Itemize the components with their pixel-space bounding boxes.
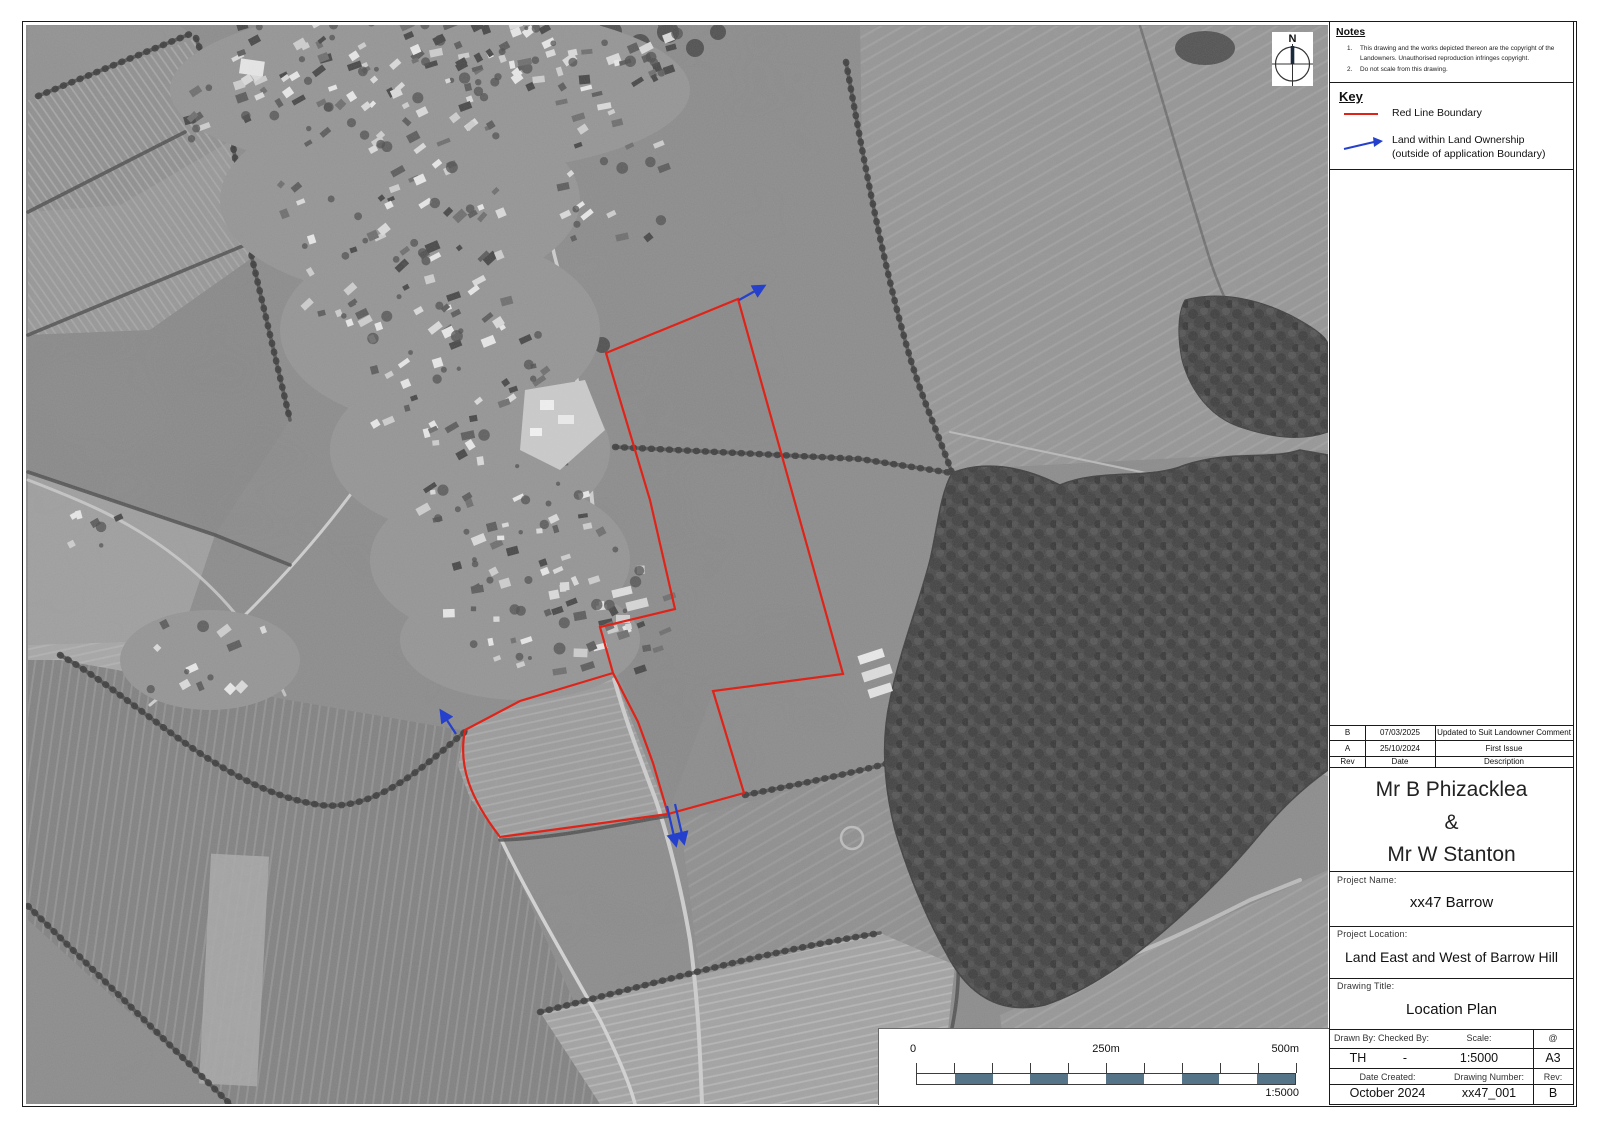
revision-header: Rev xyxy=(1330,757,1365,766)
drawing-number-value: xx47_001 xyxy=(1445,1086,1533,1100)
title-block: Notes 1. This drawing and the works depi… xyxy=(1329,21,1574,1105)
scale-value: 1:5000 xyxy=(1425,1051,1533,1065)
revision-cell: A xyxy=(1330,744,1365,753)
scale-bar: 0 250m 500m 1:5000 xyxy=(878,1028,1329,1105)
scale-mid-label: 250m xyxy=(879,1043,1333,1055)
rev-label: Rev: xyxy=(1533,1072,1573,1082)
rev-value: B xyxy=(1533,1086,1573,1100)
red-line-legend-swatch xyxy=(1344,113,1378,115)
north-label: N xyxy=(1272,33,1313,45)
scale-end-label: 500m xyxy=(1271,1043,1299,1055)
revision-cell: B xyxy=(1330,728,1365,737)
red-line-legend-label: Red Line Boundary xyxy=(1392,107,1482,119)
north-indicator: N xyxy=(1272,32,1313,86)
client-names: Mr B Phizacklea & Mr W Stanton xyxy=(1330,774,1573,872)
notes-heading: Notes xyxy=(1336,26,1365,38)
scale-bar-segments xyxy=(916,1073,1296,1085)
revision-header: Description xyxy=(1435,757,1573,766)
key-heading: Key xyxy=(1339,89,1363,104)
ownership-legend-label: Land within Land Ownership (outside of a… xyxy=(1392,134,1562,161)
drawn-by-value: TH xyxy=(1336,1051,1380,1065)
revision-cell: 25/10/2024 xyxy=(1365,744,1435,753)
paper-size-value: A3 xyxy=(1533,1051,1573,1065)
revision-cell: Updated to Suit Landowner Comment xyxy=(1435,728,1573,737)
notes-section: 1. This drawing and the works depicted t… xyxy=(1347,44,1563,77)
project-location-value: Land East and West of Barrow Hill xyxy=(1330,949,1573,965)
note-item: 2. Do not scale from this drawing. xyxy=(1347,65,1563,75)
revision-cell: 07/03/2025 xyxy=(1365,728,1435,737)
revision-cell: First Issue xyxy=(1435,744,1573,753)
drawing-title-label: Drawing Title: xyxy=(1337,981,1394,991)
drawing-number-label: Drawing Number: xyxy=(1445,1072,1533,1082)
checked-by-value: - xyxy=(1380,1051,1430,1065)
note-item: 1. This drawing and the works depicted t… xyxy=(1347,44,1563,63)
date-created-label: Date Created: xyxy=(1330,1072,1445,1082)
ownership-legend-swatch xyxy=(1342,137,1384,158)
project-name-value: xx47 Barrow xyxy=(1330,894,1573,911)
drawn-by-label: Drawn By: xyxy=(1334,1033,1378,1043)
drawing-title-value: Location Plan xyxy=(1330,1001,1573,1018)
aerial-photo xyxy=(26,25,1328,1104)
scale-label: Scale: xyxy=(1425,1033,1533,1043)
paper-at-label: @ xyxy=(1533,1033,1573,1043)
drawing-sheet: N 0 250m 500m 1:5000 Notes 1. This drawi… xyxy=(0,0,1600,1131)
project-name-label: Project Name: xyxy=(1337,875,1397,885)
map-canvas xyxy=(26,25,1328,1104)
project-location-label: Project Location: xyxy=(1337,929,1407,939)
date-created-value: October 2024 xyxy=(1330,1086,1445,1100)
revision-header: Date xyxy=(1365,757,1435,766)
scale-ratio: 1:5000 xyxy=(1265,1087,1299,1099)
